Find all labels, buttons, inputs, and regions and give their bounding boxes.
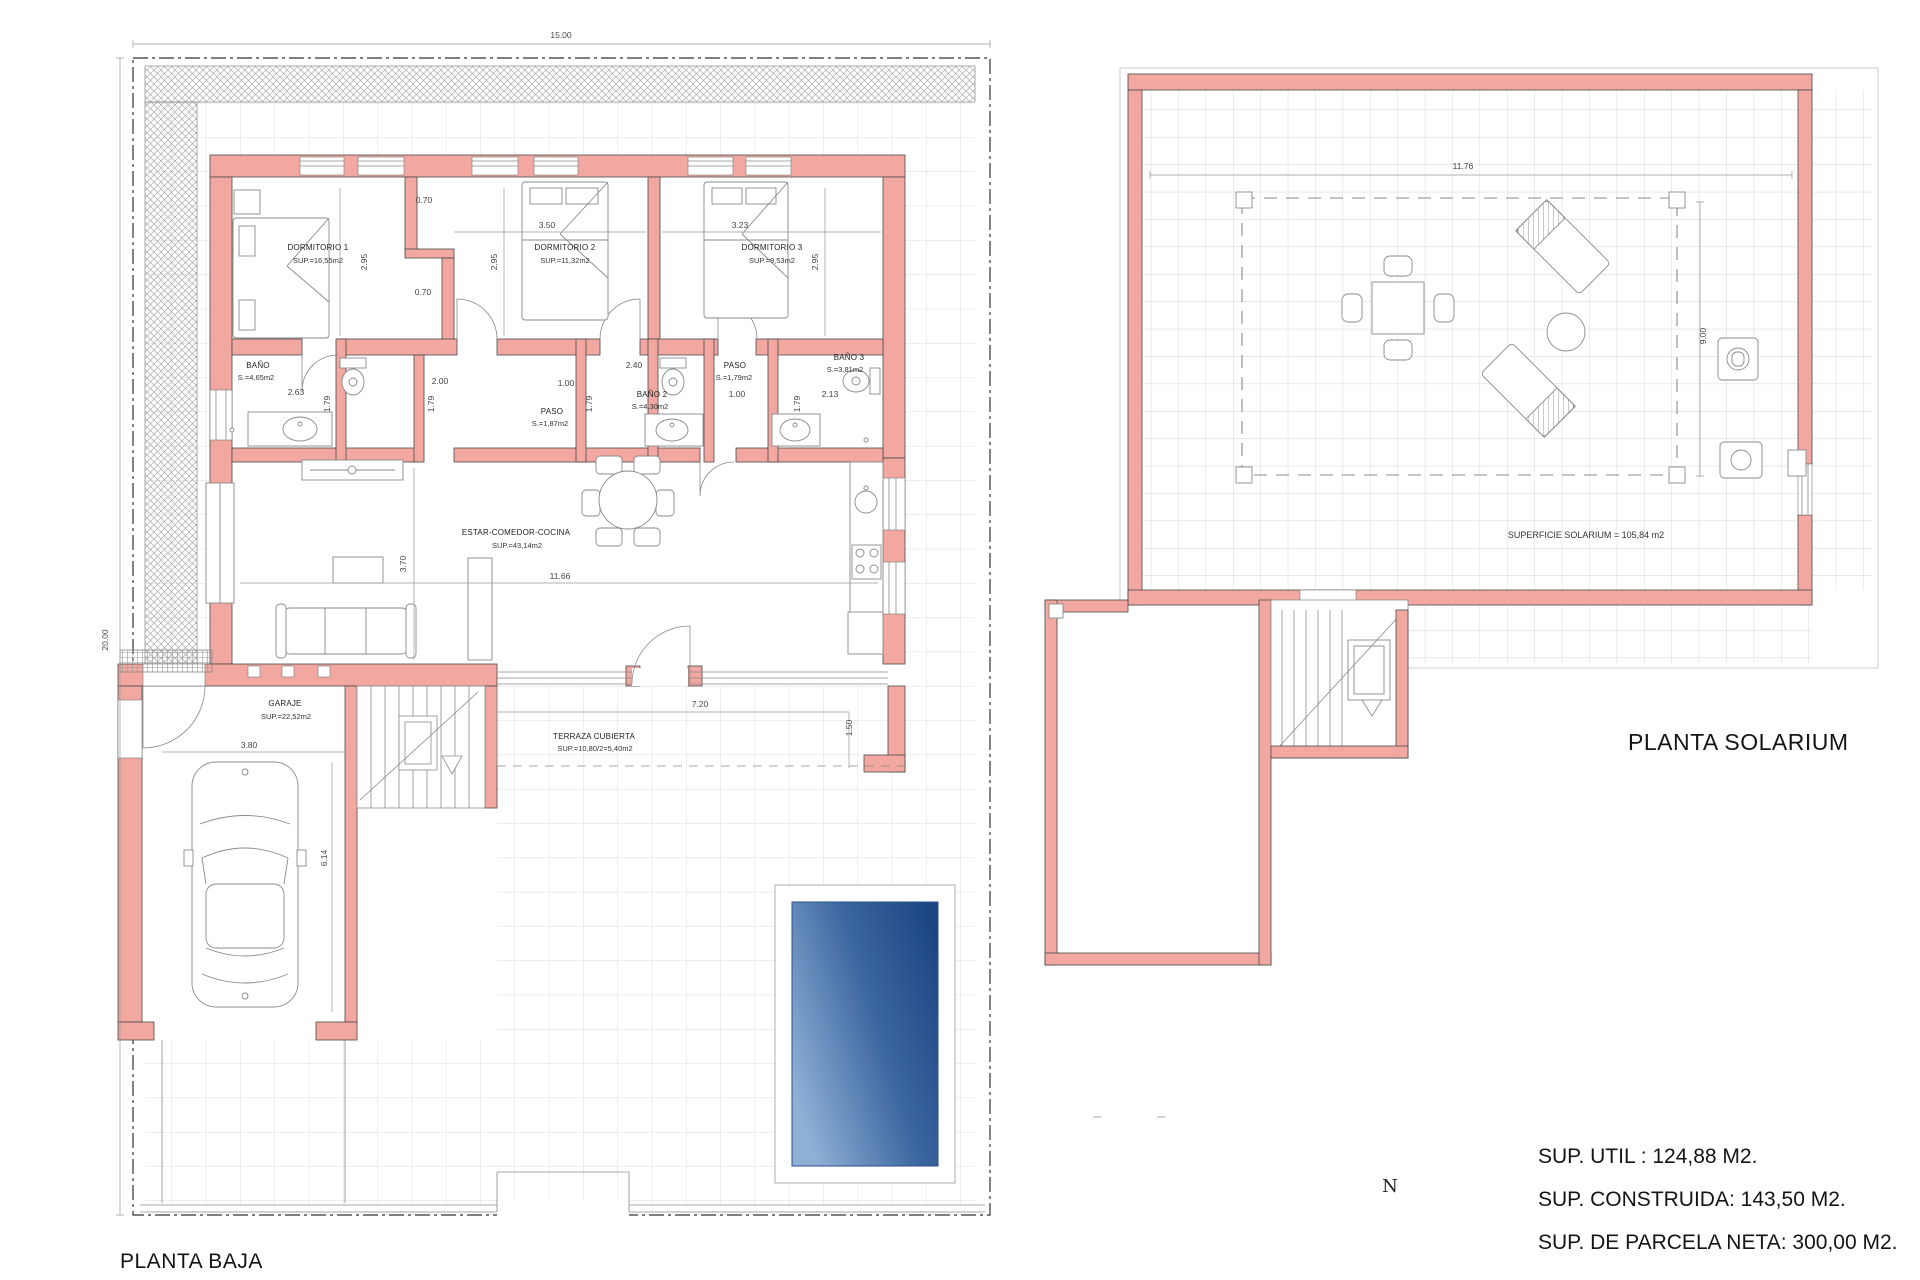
summary-block: SUP. UTIL : 124,88 M2. SUP. CONSTRUIDA: … xyxy=(1538,1145,1898,1254)
dim-garaje-w: 3.80 xyxy=(241,740,258,750)
dim-solarium-w: 11.76 xyxy=(1453,161,1474,171)
title-planta-baja: PLANTA BAJA xyxy=(120,1250,263,1273)
dim-hall-h: 1.79 xyxy=(426,395,436,412)
dim-terraza-w: 7.20 xyxy=(692,699,709,709)
area-label-paso2: S.=1,79m2 xyxy=(716,373,752,382)
summary-sup-construida: SUP. CONSTRUIDA: 143,50 M2. xyxy=(1538,1188,1846,1211)
annex-roof xyxy=(1045,600,1271,965)
tv-unit xyxy=(206,483,234,603)
summary-sup-util: SUP. UTIL : 124,88 M2. xyxy=(1538,1145,1757,1168)
dim-estar-w: 11.66 xyxy=(550,571,571,581)
area-label-bano3: S.=3,81m2 xyxy=(827,365,863,374)
dim-closet-a: 0.70 xyxy=(416,195,433,205)
sideboard xyxy=(302,460,403,480)
room-label-dormitorio3: DORMITORIO 3 xyxy=(742,243,803,252)
kitchen-island xyxy=(468,558,492,660)
compass-north-label: N xyxy=(1382,1176,1398,1197)
area-label-estar: SUP.=43,14m2 xyxy=(492,541,542,550)
dim-estar-h: 3.70 xyxy=(398,555,408,572)
room-label-paso1: PASO xyxy=(541,407,563,416)
area-label-dormitorio3: SUP.=9,53m2 xyxy=(749,256,795,265)
round-table xyxy=(1547,313,1585,351)
dim-bano3-w: 2.13 xyxy=(822,389,839,399)
dim-bano2-h: 1.79 xyxy=(584,395,594,412)
area-label-paso1: S.=1,87m2 xyxy=(532,419,568,428)
dim-bano1-h: 1.79 xyxy=(322,395,332,412)
planta-solarium-plan: 11.76 9.00 SUPERFICIE SOLARIUM = 105,84 … xyxy=(1045,68,1878,965)
dim-dorm1-h: 2.95 xyxy=(359,253,369,270)
kitchen-counter xyxy=(848,462,883,654)
architectural-plan-sheet: 15.00 20.00 DORMITORIO 1 SUP.=16,55m2 2.… xyxy=(0,0,1920,1280)
dim-bano1-w: 2.63 xyxy=(288,387,305,397)
dim-dorm3-w: 3.23 xyxy=(732,220,749,230)
dim-hall-b: 1.00 xyxy=(558,378,575,388)
room-label-bano1: BAÑO xyxy=(246,361,269,370)
dim-solarium-h: 9.00 xyxy=(1698,327,1708,344)
room-label-garaje: GARAJE xyxy=(268,699,301,708)
coffee-table xyxy=(333,557,383,583)
area-label-dormitorio1: SUP.=16,55m2 xyxy=(293,256,343,265)
solarium-surface-label: SUPERFICIE SOLARIUM = 105,84 m2 xyxy=(1508,530,1664,540)
solarium-fixture-1 xyxy=(1718,338,1758,380)
toilet-bano1 xyxy=(340,358,366,395)
dim-closet-b: 0.70 xyxy=(415,287,432,297)
room-label-dormitorio2: DORMITORIO 2 xyxy=(535,243,596,252)
sofa xyxy=(276,604,416,658)
area-label-dormitorio2: SUP.=11,32m2 xyxy=(540,256,590,265)
title-planta-solarium: PLANTA SOLARIUM xyxy=(1628,729,1849,755)
area-label-bano1: S.=4,65m2 xyxy=(238,373,274,382)
room-label-bano2: BAÑO 2 xyxy=(637,390,668,399)
dim-hall-a: 2.00 xyxy=(432,376,449,386)
room-label-terraza: TERRAZA CUBIERTA xyxy=(553,732,635,741)
room-label-bano3: BAÑO 3 xyxy=(834,353,865,362)
dim-terraza-h: 1.50 xyxy=(844,719,854,736)
floor-plan-canvas: 15.00 20.00 DORMITORIO 1 SUP.=16,55m2 2.… xyxy=(0,0,1920,1280)
area-label-garaje: SUP.=22,52m2 xyxy=(261,712,311,721)
dim-parcel-width: 15.00 xyxy=(550,30,572,40)
summary-sup-parcela: SUP. DE PARCELA NETA: 300,00 M2. xyxy=(1538,1231,1898,1254)
pool xyxy=(775,885,955,1183)
room-label-estar: ESTAR-COMEDOR-COCINA xyxy=(462,528,571,537)
planta-baja-plan: 15.00 20.00 DORMITORIO 1 SUP.=16,55m2 2.… xyxy=(100,30,990,1216)
dim-garaje-h: 6.14 xyxy=(319,849,329,866)
dim-dorm2-h: 2.95 xyxy=(489,253,499,270)
car-icon xyxy=(184,762,306,1007)
dim-parcel-height: 20.00 xyxy=(100,629,110,651)
sink-bano2 xyxy=(645,414,703,446)
dim-bano2-w: 2.40 xyxy=(626,360,643,370)
room-label-paso2: PASO xyxy=(724,361,746,370)
stairs-solarium xyxy=(1271,600,1408,758)
bed-double-dorm1 xyxy=(233,218,329,338)
stairs-ground-floor xyxy=(357,686,485,808)
dim-dorm3-h: 2.95 xyxy=(810,253,820,270)
area-label-bano2: S.=4,30m2 xyxy=(632,402,668,411)
wall-grille xyxy=(120,650,212,672)
area-label-terraza: SUP.=10,80/2=5,40m2 xyxy=(557,744,632,753)
dim-dorm2-w: 3.50 xyxy=(539,220,556,230)
wardrobe-dorm1 xyxy=(234,190,260,214)
dim-bano3-h: 1.79 xyxy=(792,395,802,412)
room-label-dormitorio1: DORMITORIO 1 xyxy=(288,243,349,252)
dim-paso2-w: 1.00 xyxy=(729,389,746,399)
